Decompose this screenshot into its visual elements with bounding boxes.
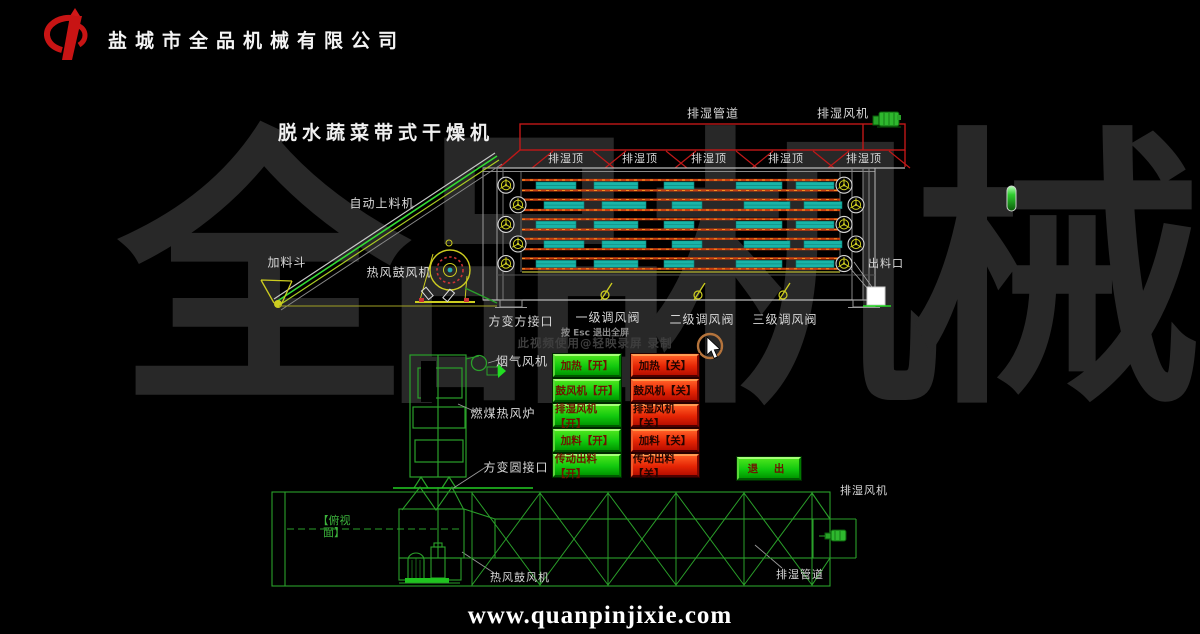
label-vent-4: 排湿顶 (768, 150, 804, 166)
page-title: 脱水蔬菜带式干燥机 (278, 118, 494, 145)
btn-exit[interactable]: 退 出 (737, 457, 801, 480)
btn-discharge-on[interactable]: 传动出料【开】 (553, 454, 621, 477)
label-vent-3: 排湿顶 (691, 150, 727, 166)
screen: 全品机械 (0, 0, 1200, 634)
btn-heat-off[interactable]: 加热【关】 (631, 354, 699, 377)
label-vent-2: 排湿顶 (622, 150, 658, 166)
label-exhaust-duct-top: 排湿管道 (687, 105, 739, 122)
label-damper-2: 二级调风阀 (669, 311, 734, 328)
recording-indicator-capsule (1007, 186, 1016, 211)
mouse-cursor (698, 334, 722, 358)
plan-view (272, 487, 856, 586)
btn-feed-off[interactable]: 加料【关】 (631, 429, 699, 452)
label-duct-plan: 排湿管道 (776, 566, 824, 582)
btn-discharge-off[interactable]: 传动出料【关】 (631, 454, 699, 477)
belt-levels (498, 177, 864, 271)
plan-exhaust-fan-icon (819, 530, 846, 541)
label-damper-3: 三级调风阀 (752, 311, 817, 328)
label-feeder: 自动上料机 (349, 195, 414, 212)
label-blower-plan: 热风鼓风机 (490, 569, 550, 585)
company-name: 盐城市全品机械有限公司 (108, 26, 405, 53)
label-flue-fan: 烟气风机 (496, 353, 548, 370)
label-furnace: 燃煤热风炉 (470, 405, 535, 422)
label-damper-1: 一级调风阀 (575, 309, 640, 326)
btn-exhaust-fan-off[interactable]: 排湿风机【关】 (631, 404, 699, 427)
exhaust-fan-icon (873, 112, 901, 127)
btn-blower-on[interactable]: 鼓风机【开】 (553, 379, 621, 402)
label-fan-plan: 排湿风机 (840, 482, 888, 498)
damper-valves (601, 283, 790, 300)
btn-feed-on[interactable]: 加料【开】 (553, 429, 621, 452)
label-vent-1: 排湿顶 (548, 150, 584, 166)
label-blower-side: 热风鼓风机 (366, 264, 431, 281)
label-square-joint: 方变方接口 (488, 313, 553, 330)
label-round-joint: 方变圆接口 (483, 459, 548, 476)
website-url: www.quanpinjixie.com (468, 602, 732, 630)
label-hopper: 加料斗 (267, 254, 306, 271)
label-vent-5: 排湿顶 (846, 150, 882, 166)
label-outlet: 出料口 (868, 255, 904, 271)
btn-blower-off[interactable]: 鼓风机【关】 (631, 379, 699, 402)
recorder-credit: 此视频使用@轻映录屏 录制 (517, 335, 672, 351)
company-logo-icon (47, 8, 85, 60)
label-exhaust-fan-top: 排湿风机 (817, 105, 869, 122)
btn-exhaust-fan-on[interactable]: 排湿风机【开】 (553, 404, 621, 427)
label-top-view: 【俯视 面】 (318, 515, 351, 539)
btn-heat-on[interactable]: 加热【开】 (553, 354, 621, 377)
